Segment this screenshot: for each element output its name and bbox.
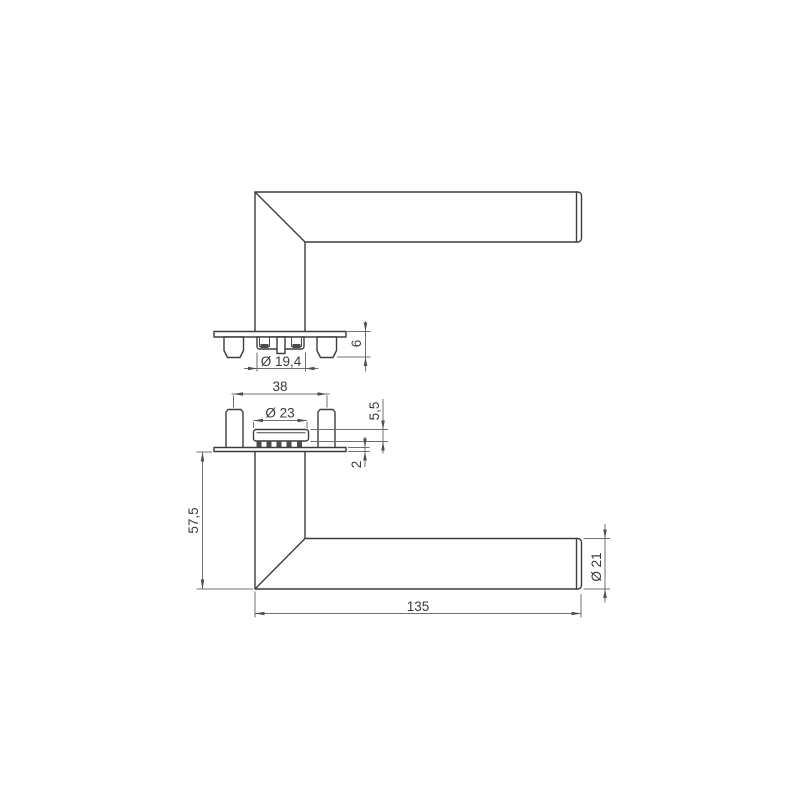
top-view xyxy=(214,192,582,358)
dimension-rose-height: 6 xyxy=(337,321,371,372)
dimension-label: 135 xyxy=(407,599,430,614)
dimension-hub-diameter: Ø 23 xyxy=(254,406,308,429)
technical-drawing-canvas: Ø 19,4 6 38 xyxy=(0,0,800,800)
spindle-hub-front xyxy=(254,430,309,448)
hub-disc xyxy=(254,430,309,442)
dimension-rose-diameter: Ø 19,4 xyxy=(244,353,319,372)
left-pin xyxy=(226,410,243,448)
handle-lever-top xyxy=(255,192,582,332)
dimension-label: 5,5 xyxy=(367,402,382,421)
rose-plate-front xyxy=(214,448,346,452)
left-lug xyxy=(224,337,244,358)
handle-lever-front xyxy=(255,452,582,590)
dimension-pin-spacing: 38 xyxy=(232,379,330,408)
dimension-lever-length: 135 xyxy=(255,592,581,618)
dimension-label: Ø 23 xyxy=(265,406,294,421)
door-handle-drawing: Ø 19,4 6 38 xyxy=(0,0,800,800)
dimension-lever-diameter: Ø 21 xyxy=(584,524,611,603)
dimension-label: Ø 21 xyxy=(589,552,604,581)
dimension-handle-projection: 57,5 xyxy=(186,452,253,589)
lever-end-cap-top xyxy=(577,192,582,242)
dimension-label: 2 xyxy=(349,461,364,469)
rose-plate-top xyxy=(214,332,346,338)
dimension-label: 6 xyxy=(349,340,364,348)
lever-end-cap-front xyxy=(577,538,582,589)
bottom-view xyxy=(214,410,582,590)
dimension-label: 57,5 xyxy=(186,507,201,533)
spindle-tab xyxy=(277,337,285,354)
spindle-hub-top xyxy=(257,337,304,354)
right-lug xyxy=(317,337,337,358)
dimension-label: Ø 19,4 xyxy=(261,354,302,369)
dimension-label: 38 xyxy=(272,379,287,394)
